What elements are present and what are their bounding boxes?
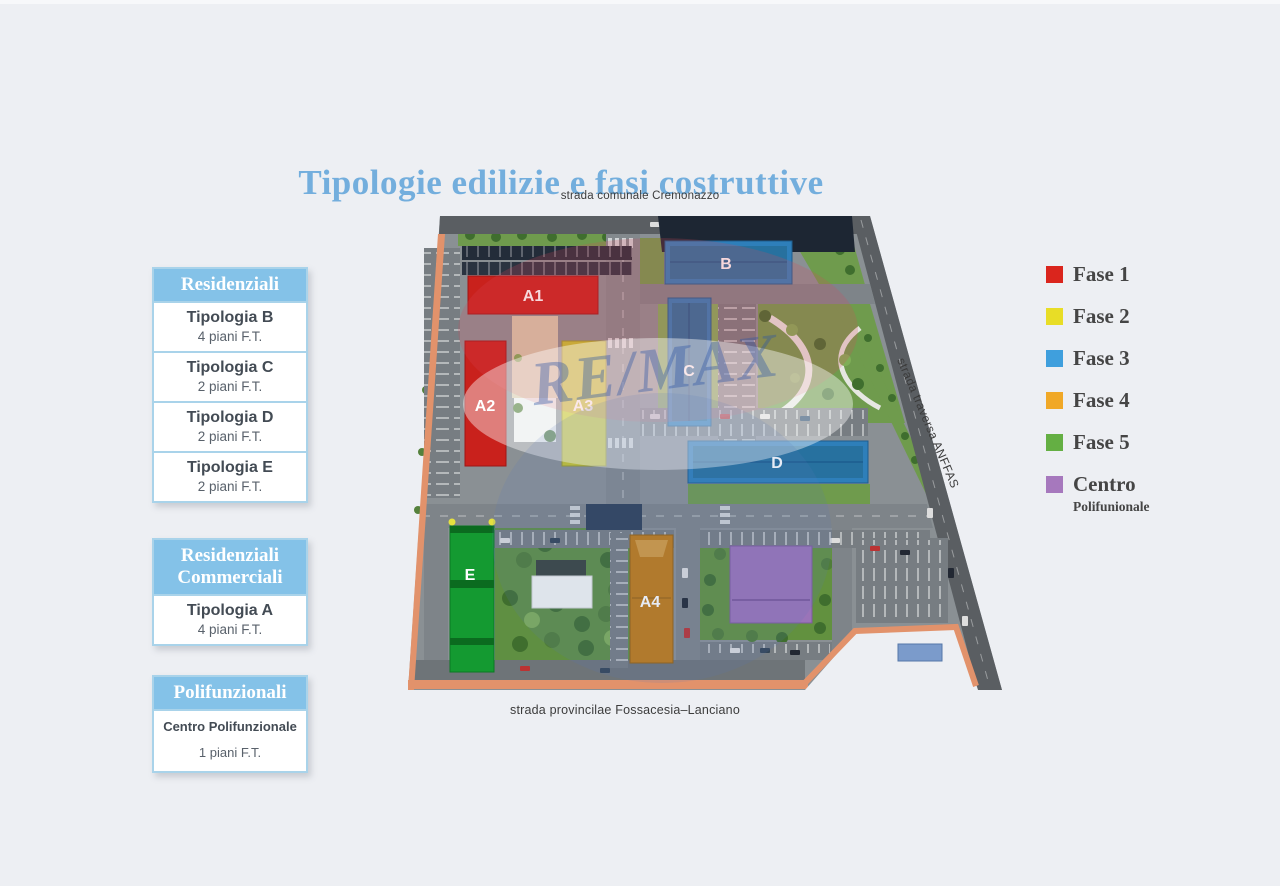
tipologia-row: Tipologia D 2 piani F.T.: [154, 401, 306, 451]
centro-swatch: [1046, 476, 1063, 493]
legend-item-fase-4: Fase 4: [1046, 391, 1150, 410]
group-header: Residenziali: [154, 269, 306, 301]
site-plan-svg: A1 A2 A3 B C D E A4 RE/MAX strada traver…: [400, 208, 1015, 702]
site-plan-map: A1 A2 A3 B C D E A4 RE/MAX strada traver…: [400, 208, 1015, 702]
fase-3-swatch: [1046, 350, 1063, 367]
building-label-e: E: [465, 567, 476, 584]
legend-item-centro: Centro Polifunionale: [1046, 475, 1150, 515]
tipologia-row: Tipologia C 2 piani F.T.: [154, 351, 306, 401]
legend-label: Fase 5: [1073, 433, 1130, 452]
tipologia-row: Tipologia E 2 piani F.T.: [154, 451, 306, 501]
sidebar-group-polifunzionali: Polifunzionali Centro Polifunzionale 1 p…: [152, 675, 308, 773]
legend-label: Fase 2: [1073, 307, 1130, 326]
row-title: Tipologia B: [156, 307, 304, 328]
legend-label: Fase 3: [1073, 349, 1130, 368]
legend-item-fase-2: Fase 2: [1046, 307, 1150, 326]
legend-item-fase-1: Fase 1: [1046, 265, 1150, 284]
row-subtitle: 4 piani F.T.: [156, 328, 304, 346]
fase-4-swatch: [1046, 392, 1063, 409]
tipologia-row: Tipologia A 4 piani F.T.: [154, 594, 306, 644]
row-subtitle: 2 piani F.T.: [156, 478, 304, 496]
sidebar-group-residenziali: Residenziali Tipologia B 4 piani F.T. Ti…: [152, 267, 308, 503]
fase-2-swatch: [1046, 308, 1063, 325]
pool-building: [898, 644, 942, 661]
row-title: Tipologia C: [156, 357, 304, 378]
row-subtitle: 2 piani F.T.: [156, 428, 304, 446]
street-label-cremonazzo: strada comunale Cremonazzo: [480, 190, 800, 202]
group-header: Residenziali Commerciali: [154, 540, 306, 594]
legend-sublabel: Polifunionale: [1073, 499, 1150, 515]
page-top-strip: [0, 0, 1280, 4]
legend-label: Fase 1: [1073, 265, 1130, 284]
row-title: Tipologia A: [156, 600, 304, 621]
group-header: Polifunzionali: [154, 677, 306, 709]
legend-item-fase-3: Fase 3: [1046, 349, 1150, 368]
row-subtitle: 2 piani F.T.: [156, 378, 304, 396]
street-label-fossacesia-lanciano: strada provincilae Fossacesia–Lanciano: [440, 703, 810, 717]
fase-1-swatch: [1046, 266, 1063, 283]
legend-label: Centro: [1073, 472, 1136, 496]
row-subtitle: 1 piani F.T.: [156, 744, 304, 762]
phase-legend: Fase 1 Fase 2 Fase 3 Fase 4 Fase 5 Centr…: [1046, 265, 1150, 538]
row-subtitle: 4 piani F.T.: [156, 621, 304, 639]
row-title: Tipologia D: [156, 407, 304, 428]
row-title: Centro Polifunzionale: [156, 719, 304, 735]
tipologia-row: Centro Polifunzionale 1 piani F.T.: [154, 709, 306, 771]
legend-label: Fase 4: [1073, 391, 1130, 410]
row-title: Tipologia E: [156, 457, 304, 478]
legend-item-fase-5: Fase 5: [1046, 433, 1150, 452]
building-e: [449, 519, 496, 673]
fase-5-swatch: [1046, 434, 1063, 451]
tipologia-row: Tipologia B 4 piani F.T.: [154, 301, 306, 351]
sidebar-group-residenziali-commerciali: Residenziali Commerciali Tipologia A 4 p…: [152, 538, 308, 646]
